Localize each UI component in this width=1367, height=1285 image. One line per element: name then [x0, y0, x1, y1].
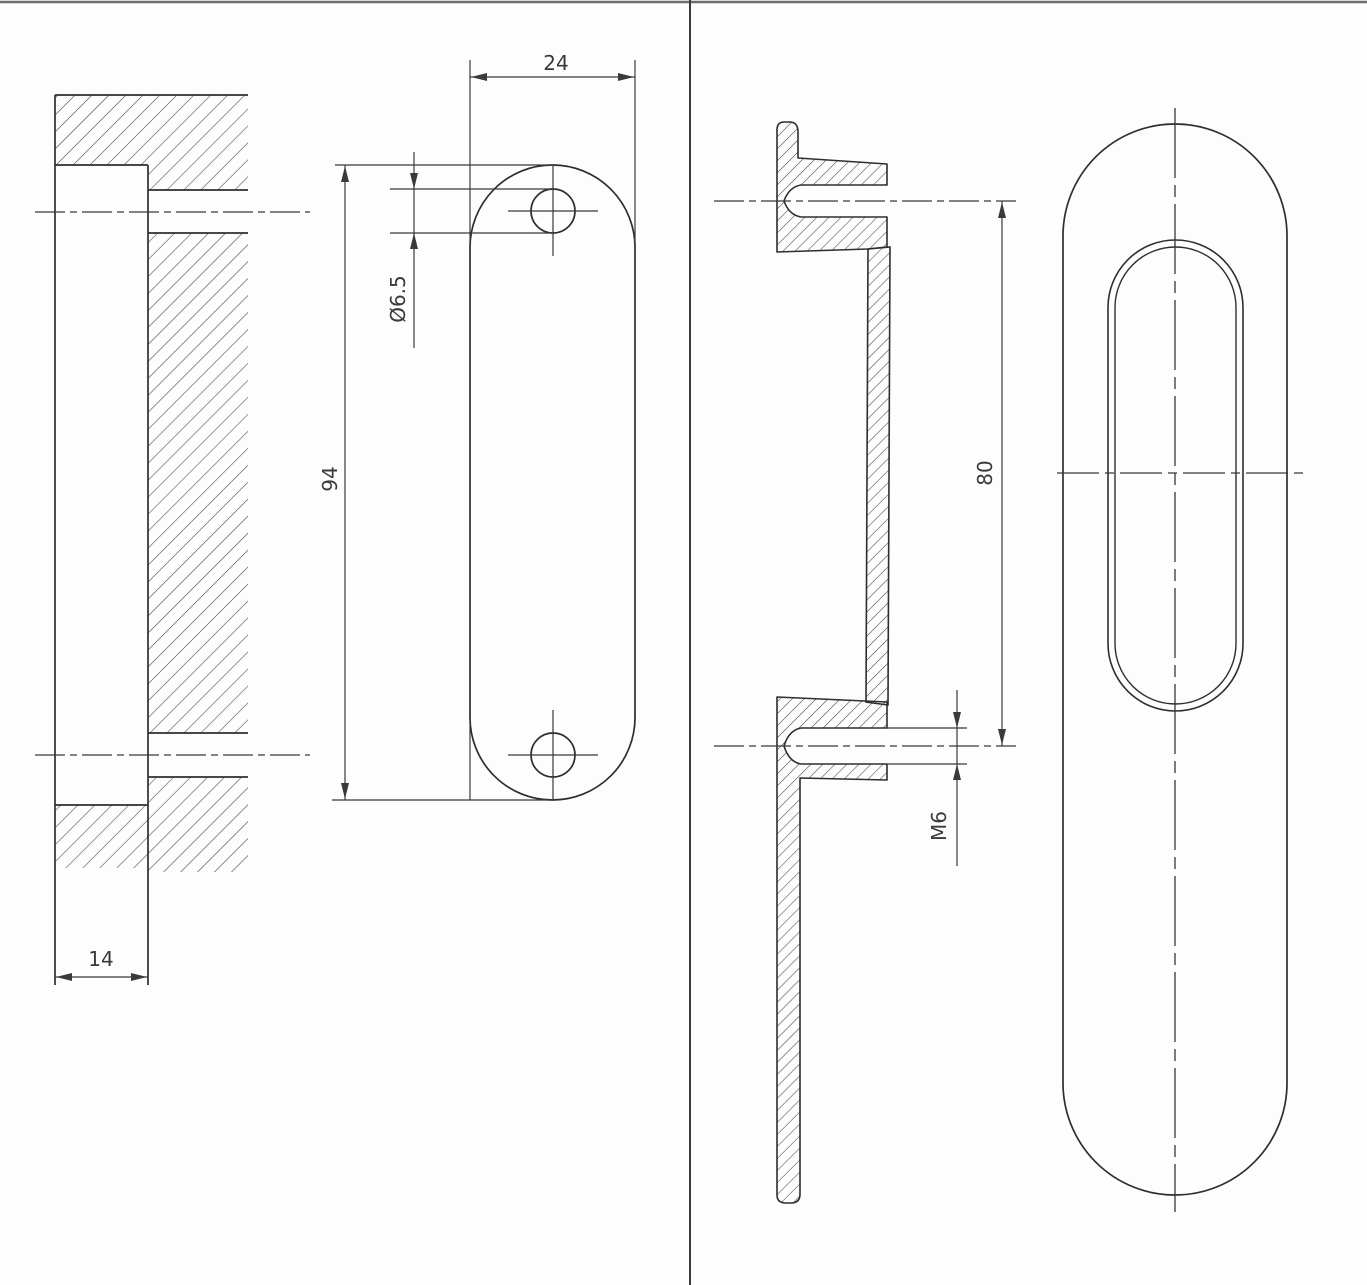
hatch-bottom-left-block: [55, 805, 148, 868]
dimension-cutout-height: 94: [318, 165, 349, 800]
dimension-thread-size: M6: [927, 690, 961, 866]
arrow-hole-bottom: [410, 233, 418, 249]
dimension-hole-spacing: 80: [973, 201, 1006, 746]
arrow-94-bottom: [341, 783, 349, 799]
label-thread-size: M6: [927, 811, 951, 841]
arrow-24-left: [471, 73, 487, 81]
hatch-lower-boss-and-tail: [777, 697, 887, 1203]
label-recess-depth: 14: [88, 947, 113, 971]
arrow-80-top: [998, 202, 1006, 218]
label-hole-spacing: 80: [973, 460, 997, 485]
hatch-bottom-right-block: [148, 777, 248, 872]
dimension-cutout-width: 24: [470, 51, 635, 81]
hatch-upper-boss: [777, 122, 887, 252]
dimension-recess-depth: 14: [55, 947, 148, 981]
arrow-94-top: [341, 166, 349, 182]
cutout-face-view: 24 94 Ø6.5: [318, 51, 635, 800]
label-hole-diameter: Ø6.5: [386, 275, 410, 323]
arrow-hole-top: [410, 173, 418, 189]
hatch-middle-column: [148, 233, 248, 733]
cutout-outline: [470, 165, 635, 800]
handle-section-view: 80 M6: [714, 122, 1016, 1203]
mortise-section-view: 14: [35, 95, 310, 985]
arrow-m6-bottom: [953, 764, 961, 780]
label-cutout-height: 94: [318, 466, 342, 491]
arrow-80-bottom: [998, 729, 1006, 745]
hatch-top-block: [55, 95, 248, 190]
dimension-hole-diameter: Ø6.5: [386, 152, 418, 348]
handle-face-view: [1057, 108, 1303, 1212]
arrow-24-right: [618, 73, 634, 81]
arrow-m6-top: [953, 712, 961, 728]
label-cutout-width: 24: [543, 51, 568, 75]
hatch-back-wall: [866, 247, 890, 705]
drawing-sheet: 14 24: [0, 0, 1367, 1285]
arrow-14-right: [131, 973, 147, 981]
technical-drawing: 14 24: [0, 0, 1367, 1285]
arrow-14-left: [56, 973, 72, 981]
